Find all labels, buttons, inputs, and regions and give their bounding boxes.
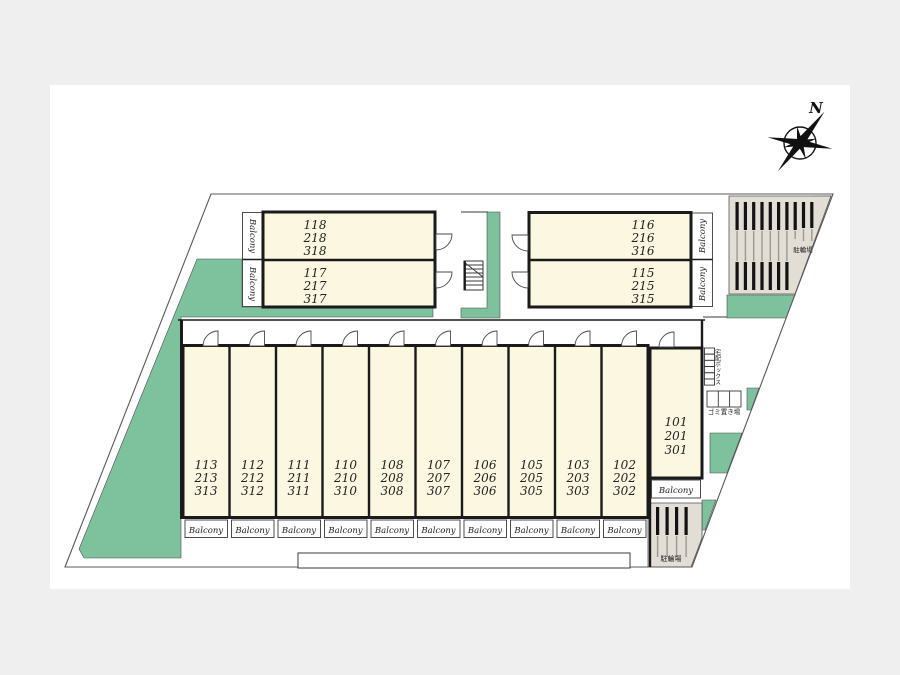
svg-text:Balcony: Balcony bbox=[420, 526, 455, 536]
upper-left-block: Balcony Balcony 118 218 318 117 217 317 bbox=[243, 212, 453, 307]
room-number: 218 bbox=[303, 231, 327, 245]
svg-text:Balcony: Balcony bbox=[560, 526, 595, 536]
svg-text:310: 310 bbox=[334, 484, 357, 498]
svg-text:108: 108 bbox=[381, 458, 404, 472]
room-number: 101 bbox=[665, 415, 688, 429]
room-number: 318 bbox=[304, 244, 327, 258]
svg-text:213: 213 bbox=[194, 471, 218, 485]
balcony-label: Balcony bbox=[247, 218, 257, 253]
bicycle-parking-south-label: 駐輪場 bbox=[661, 554, 682, 563]
svg-text:210: 210 bbox=[333, 471, 357, 485]
svg-text:208: 208 bbox=[380, 471, 404, 485]
svg-text:207: 207 bbox=[426, 471, 450, 485]
svg-text:Balcony: Balcony bbox=[327, 526, 362, 536]
room-number: 315 bbox=[632, 292, 655, 306]
svg-text:305: 305 bbox=[520, 484, 543, 498]
site-plan-svg: 駐輪場 駐輪場 bbox=[0, 0, 900, 675]
room-number: 217 bbox=[303, 279, 327, 293]
svg-text:Balcony: Balcony bbox=[606, 526, 641, 536]
main-row-block: 113213313 112212312 111211311 110210310 … bbox=[183, 331, 648, 538]
room-number: 301 bbox=[665, 443, 688, 457]
svg-text:303: 303 bbox=[567, 484, 590, 498]
room-number: 118 bbox=[304, 218, 327, 232]
svg-text:205: 205 bbox=[519, 471, 543, 485]
svg-text:103: 103 bbox=[567, 458, 590, 472]
bicycle-parking-south: 駐輪場 bbox=[648, 503, 702, 567]
svg-text:206: 206 bbox=[473, 471, 497, 485]
balcony-label: Balcony bbox=[658, 486, 693, 496]
balcony-label: Balcony bbox=[247, 266, 257, 301]
garbage-area: ゴミ置き場 bbox=[707, 391, 741, 416]
balcony-label: Balcony bbox=[698, 219, 708, 254]
svg-text:110: 110 bbox=[334, 458, 357, 472]
svg-text:Balcony: Balcony bbox=[188, 526, 223, 536]
balcony-label: Balcony bbox=[698, 267, 708, 302]
svg-text:211: 211 bbox=[287, 471, 311, 485]
site-plan-page: 駐輪場 駐輪場 bbox=[0, 0, 900, 675]
svg-text:203: 203 bbox=[566, 471, 590, 485]
svg-text:212: 212 bbox=[240, 471, 264, 485]
delivery-boxes: 宅配ボックス bbox=[705, 348, 721, 385]
svg-text:313: 313 bbox=[195, 484, 218, 498]
svg-text:Balcony: Balcony bbox=[467, 526, 502, 536]
room-number: 115 bbox=[632, 266, 655, 280]
room-number: 215 bbox=[631, 279, 655, 293]
svg-text:105: 105 bbox=[520, 458, 543, 472]
room-number: 317 bbox=[304, 292, 327, 306]
street-wall bbox=[298, 553, 630, 568]
svg-text:202: 202 bbox=[612, 471, 636, 485]
svg-text:308: 308 bbox=[381, 484, 404, 498]
green-northeast-strip bbox=[727, 295, 795, 318]
room-number: 216 bbox=[631, 231, 655, 245]
svg-text:Balcony: Balcony bbox=[281, 526, 316, 536]
svg-text:312: 312 bbox=[241, 484, 264, 498]
svg-text:306: 306 bbox=[474, 484, 497, 498]
delivery-box-label: 宅配ボックス bbox=[714, 348, 721, 385]
svg-text:Balcony: Balcony bbox=[513, 526, 548, 536]
room-number: 117 bbox=[304, 266, 327, 280]
east-end-room: 101 201 301 Balcony bbox=[650, 332, 702, 498]
svg-text:111: 111 bbox=[288, 458, 311, 472]
svg-text:107: 107 bbox=[427, 458, 450, 472]
stairs bbox=[464, 261, 483, 290]
svg-text:Balcony: Balcony bbox=[374, 526, 409, 536]
room-number: 116 bbox=[632, 218, 655, 232]
svg-text:302: 302 bbox=[613, 484, 636, 498]
upper-right-block: Balcony Balcony 116 216 316 115 215 315 bbox=[512, 213, 713, 308]
svg-text:307: 307 bbox=[427, 484, 450, 498]
svg-text:112: 112 bbox=[241, 458, 264, 472]
svg-text:311: 311 bbox=[288, 484, 311, 498]
room-number: 201 bbox=[664, 429, 688, 443]
room-number: 316 bbox=[632, 244, 655, 258]
svg-text:Balcony: Balcony bbox=[234, 526, 269, 536]
svg-text:106: 106 bbox=[474, 458, 497, 472]
svg-text:102: 102 bbox=[613, 458, 636, 472]
svg-text:113: 113 bbox=[195, 458, 218, 472]
garbage-area-label: ゴミ置き場 bbox=[708, 407, 741, 416]
compass-north-label: N bbox=[808, 99, 824, 117]
room-101 bbox=[650, 348, 702, 478]
